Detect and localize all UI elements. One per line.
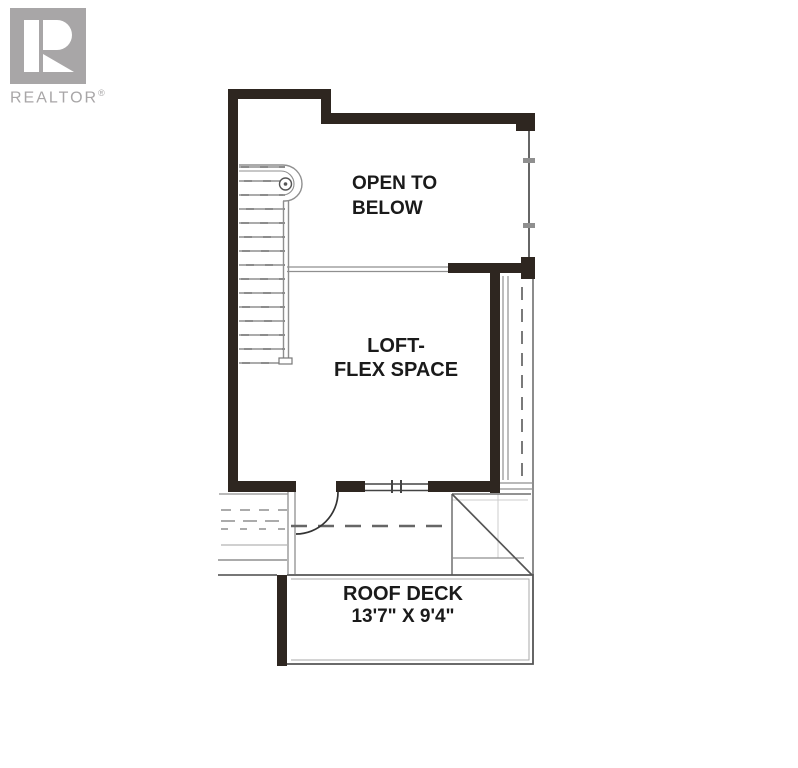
- room-label-open-to-below: OPEN TO BELOW: [352, 171, 437, 221]
- floor-plan-page: REALTOR®: [0, 0, 798, 768]
- roof-lines-left: [218, 492, 295, 575]
- wall-left-exterior: [228, 89, 238, 492]
- wall-bottom-middle: [336, 481, 365, 492]
- door-arc: [296, 492, 338, 534]
- roof-hip-triangle: [452, 494, 532, 575]
- stairs: [239, 167, 285, 363]
- wall-top-right: [321, 113, 535, 124]
- wall-window-top-post: [516, 113, 535, 131]
- wall-bottom-left: [228, 481, 296, 492]
- roof-lines-right: [500, 265, 533, 575]
- wall-bottom-right: [428, 481, 500, 492]
- window-bottom: [365, 480, 428, 493]
- wall-loft-right: [490, 263, 500, 493]
- window-right: [523, 130, 535, 260]
- floor-plan-drawing: [0, 0, 798, 768]
- loft-railing: [287, 267, 448, 272]
- room-label-roof-deck: ROOF DECK 13'7" X 9'4": [288, 583, 518, 628]
- wall-top-left: [228, 89, 331, 99]
- room-label-loft-flex-space: LOFT- FLEX SPACE: [323, 334, 469, 382]
- wall-deck-left: [277, 575, 287, 666]
